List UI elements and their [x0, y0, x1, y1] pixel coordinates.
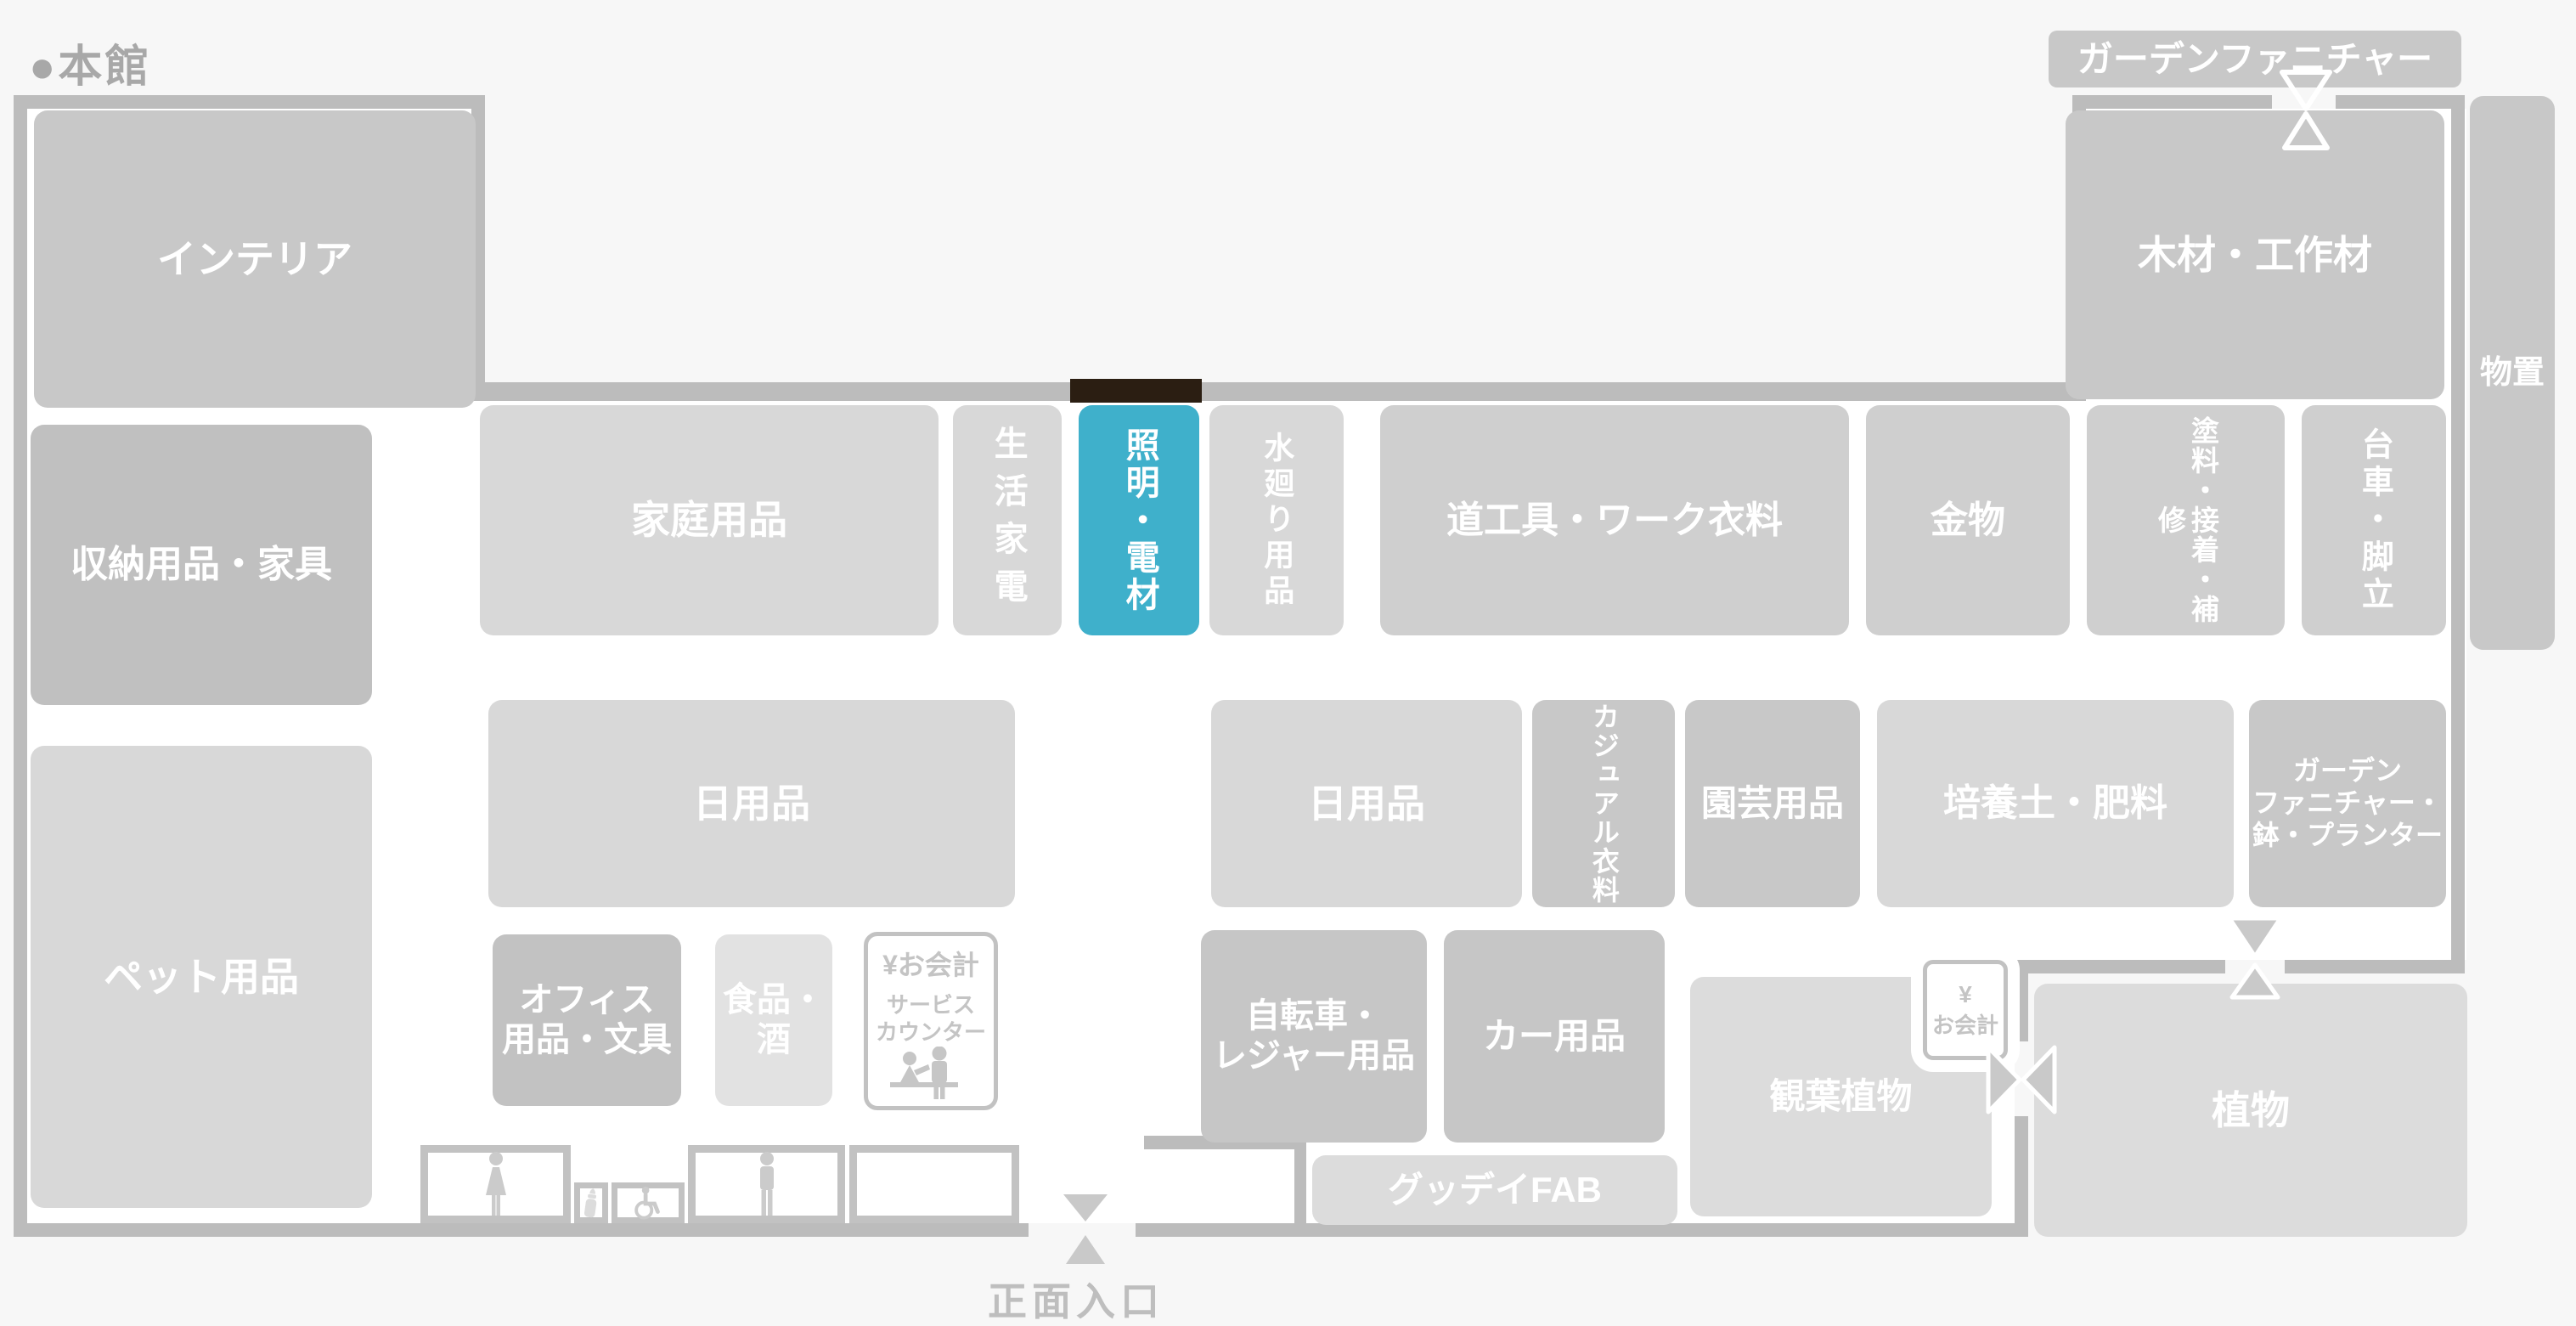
- restroom-men: [688, 1145, 845, 1223]
- woman-icon: [479, 1151, 513, 1217]
- room-lighting-electrical-highlighted[interactable]: 照明・電材: [1079, 405, 1199, 635]
- highlight-wall-marker: [1070, 379, 1202, 403]
- store-floor-map: ●本館 インテリア 収納用品・家具 ペット用品 家庭用品 生活家電 照明・電材 …: [0, 0, 2576, 1326]
- room-pet-goods[interactable]: ペット用品: [31, 746, 372, 1208]
- room-carts-stepladders[interactable]: 台車・脚立: [2302, 405, 2446, 635]
- room-household-goods[interactable]: 家庭用品: [480, 405, 939, 635]
- checkout-small-label: お会計: [1932, 1008, 1998, 1040]
- wall-bottom-mid: [1136, 1223, 2028, 1237]
- service-counter-label: カウンター: [876, 1018, 986, 1047]
- yen-icon: ¥: [1959, 981, 1972, 1008]
- room-office-stationery[interactable]: オフィス 用品・文具: [493, 934, 681, 1106]
- room-bicycle-leisure[interactable]: 自転車・ レジャー用品: [1201, 930, 1427, 1143]
- wall-right: [2451, 95, 2465, 973]
- main-entrance-label: 正面入口: [949, 1271, 1203, 1326]
- room-garden-furniture-pots[interactable]: ガーデン ファニチャー・ 鉢・プランター: [2249, 700, 2446, 907]
- wall-top-right-b: [2336, 95, 2465, 109]
- checkout-service-counter: ¥お会計 サービス カウンター: [864, 932, 998, 1110]
- plants-entrance-marker-icon: [2227, 916, 2283, 1001]
- garden-furniture-label[interactable]: ガーデンファニチャー: [2049, 31, 2461, 87]
- wall-bottom-right-a: [2015, 960, 2225, 973]
- room-food-liquor[interactable]: 食品・ 酒: [715, 934, 832, 1106]
- utility-room: [849, 1145, 1019, 1223]
- nursing-room: [574, 1182, 608, 1223]
- room-storage-shed[interactable]: 物置: [2470, 96, 2555, 650]
- room-storage-furniture[interactable]: 収納用品・家具: [31, 425, 372, 705]
- wall-top-right-a: [2072, 95, 2272, 109]
- accessible-restroom: [612, 1182, 685, 1223]
- room-gooday-fab[interactable]: グッデイFAB: [1312, 1155, 1677, 1225]
- room-gardening-goods[interactable]: 園芸用品: [1685, 700, 1860, 907]
- room-daily-goods-right[interactable]: 日用品: [1211, 700, 1522, 907]
- baby-bottle-icon: [581, 1187, 602, 1219]
- room-hardware[interactable]: 金物: [1866, 405, 2070, 635]
- room-car-goods[interactable]: カー用品: [1444, 930, 1665, 1143]
- room-plants[interactable]: 植物: [2034, 984, 2467, 1237]
- restroom-women: [420, 1145, 571, 1223]
- room-casual-clothing[interactable]: カジュアル衣料: [1532, 700, 1675, 907]
- wall-middle-top: [471, 382, 2086, 401]
- room-soil-fertilizer[interactable]: 培養土・肥料: [1877, 700, 2234, 907]
- wall-vestibule-side: [1294, 1136, 1306, 1237]
- main-entrance-marker-icon: [1062, 1193, 1109, 1267]
- room-daily-goods-left[interactable]: 日用品: [488, 700, 1015, 907]
- wall-inner-vertical-a: [2015, 960, 2028, 1041]
- wall-left: [14, 95, 27, 1237]
- service-counter-label: サービス: [887, 991, 975, 1019]
- service-counter-icon: [888, 1047, 973, 1099]
- room-paint-adhesive-repair[interactable]: 塗料・接着・補修: [2087, 405, 2285, 635]
- man-icon: [750, 1151, 784, 1217]
- room-interior-goods[interactable]: インテリア: [34, 110, 476, 408]
- room-home-appliances[interactable]: 生活家電: [953, 405, 1062, 635]
- wall-bottom-left: [14, 1223, 1029, 1237]
- garden-entrance-marker-icon: [2280, 70, 2332, 151]
- wall-bottom-right-b: [2285, 960, 2465, 973]
- checkout-label: ¥お会計: [882, 944, 979, 983]
- room-tools-workwear[interactable]: 道工具・ワーク衣料: [1380, 405, 1849, 635]
- room-lumber-craft[interactable]: 木材・工作材: [2066, 110, 2444, 399]
- houseplants-passage-marker-icon: [1986, 1045, 2057, 1114]
- wall-top-left: [14, 95, 485, 109]
- wall-inner-vertical-b: [2015, 1116, 2028, 1237]
- wheelchair-icon: [629, 1185, 667, 1221]
- building-title: ●本館: [29, 31, 151, 94]
- room-plumbing-goods[interactable]: 水廻り用品: [1209, 405, 1344, 635]
